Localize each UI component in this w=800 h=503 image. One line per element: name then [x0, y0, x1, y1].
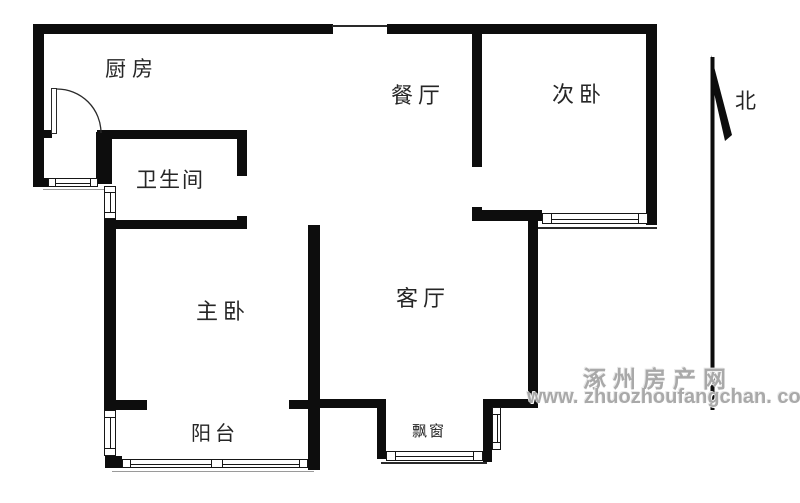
- wall-top-opening-line: [332, 25, 388, 27]
- wall-master-bottom-stub-right: [289, 400, 320, 409]
- sill-entry-window: [43, 189, 105, 190]
- wall-left-outer: [33, 24, 44, 179]
- wall-bay-left: [377, 399, 386, 459]
- window-cap: [211, 459, 223, 468]
- sill-balcony-window: [112, 471, 314, 472]
- room-label-second-bedroom: 次卧: [552, 83, 606, 107]
- wall-kitchen-bottom-left: [33, 130, 52, 138]
- wall-bathroom-bottom: [112, 220, 247, 229]
- window-cap: [104, 448, 116, 456]
- room-label-master-bedroom: 主卧: [196, 300, 250, 324]
- room-label-dining: 餐厅: [391, 84, 445, 108]
- window-symbol-second-bedroom: [542, 213, 648, 224]
- window-glass-line: [387, 456, 482, 457]
- window-cap: [299, 459, 308, 468]
- window-cap: [90, 178, 98, 187]
- wall-living-master-divider: [308, 225, 320, 470]
- room-label-bay-window: 飘窗: [412, 424, 446, 441]
- window-symbol-balcony-left: [104, 410, 116, 456]
- wall-living-bottom-left: [319, 399, 383, 408]
- window-cap: [122, 459, 131, 468]
- compass-north-label: 北: [735, 90, 756, 113]
- wall-living-right: [528, 217, 538, 408]
- window-symbol-bay-side: [492, 407, 501, 450]
- wall-top-right: [387, 24, 657, 34]
- wall-master-bottom-stub-left: [104, 400, 147, 410]
- room-label-kitchen: 厨房: [105, 58, 159, 81]
- wall-bay-right: [483, 399, 492, 462]
- window-cap: [104, 186, 116, 193]
- window-cap: [473, 451, 483, 461]
- window-cap: [104, 410, 116, 418]
- window-cap: [542, 213, 552, 224]
- sill-bay-window: [381, 462, 487, 464]
- sill-bedroom-window: [538, 227, 657, 229]
- door-leaf: [51, 88, 57, 134]
- room-label-living-room: 客厅: [396, 287, 450, 311]
- watermark-url: www. zhuozhoufangchan. com: [527, 386, 800, 409]
- window-symbol-entry: [48, 178, 98, 187]
- wall-balcony-corner: [105, 456, 122, 468]
- wall-master-left: [104, 218, 116, 410]
- wall-bathroom-right-upper: [237, 131, 247, 176]
- wall-top-left: [33, 24, 333, 34]
- window-cap: [492, 442, 501, 450]
- window-glass-line: [543, 219, 647, 220]
- window-symbol-bathroom: [104, 186, 116, 219]
- window-cap: [638, 213, 648, 224]
- window-cap: [104, 212, 116, 219]
- window-cap: [48, 178, 56, 187]
- room-label-bathroom: 卫生间: [136, 169, 205, 192]
- wall-entry-pier: [96, 132, 112, 184]
- window-cap: [386, 451, 396, 461]
- wall-dining-bedroom-divider: [472, 24, 482, 167]
- wall-kitchen-bottom: [97, 130, 247, 139]
- window-cap: [492, 407, 501, 415]
- window-symbol-balcony-front: [122, 459, 308, 468]
- room-label-balcony: 阳台: [191, 423, 239, 445]
- floor-plan: 厨房 餐厅 次卧 卫生间 主卧 客厅 阳台 飘窗 北 涿州房产网 www. zh…: [0, 0, 800, 503]
- wall-right-outer: [646, 24, 657, 225]
- window-symbol-bay-front: [386, 451, 483, 461]
